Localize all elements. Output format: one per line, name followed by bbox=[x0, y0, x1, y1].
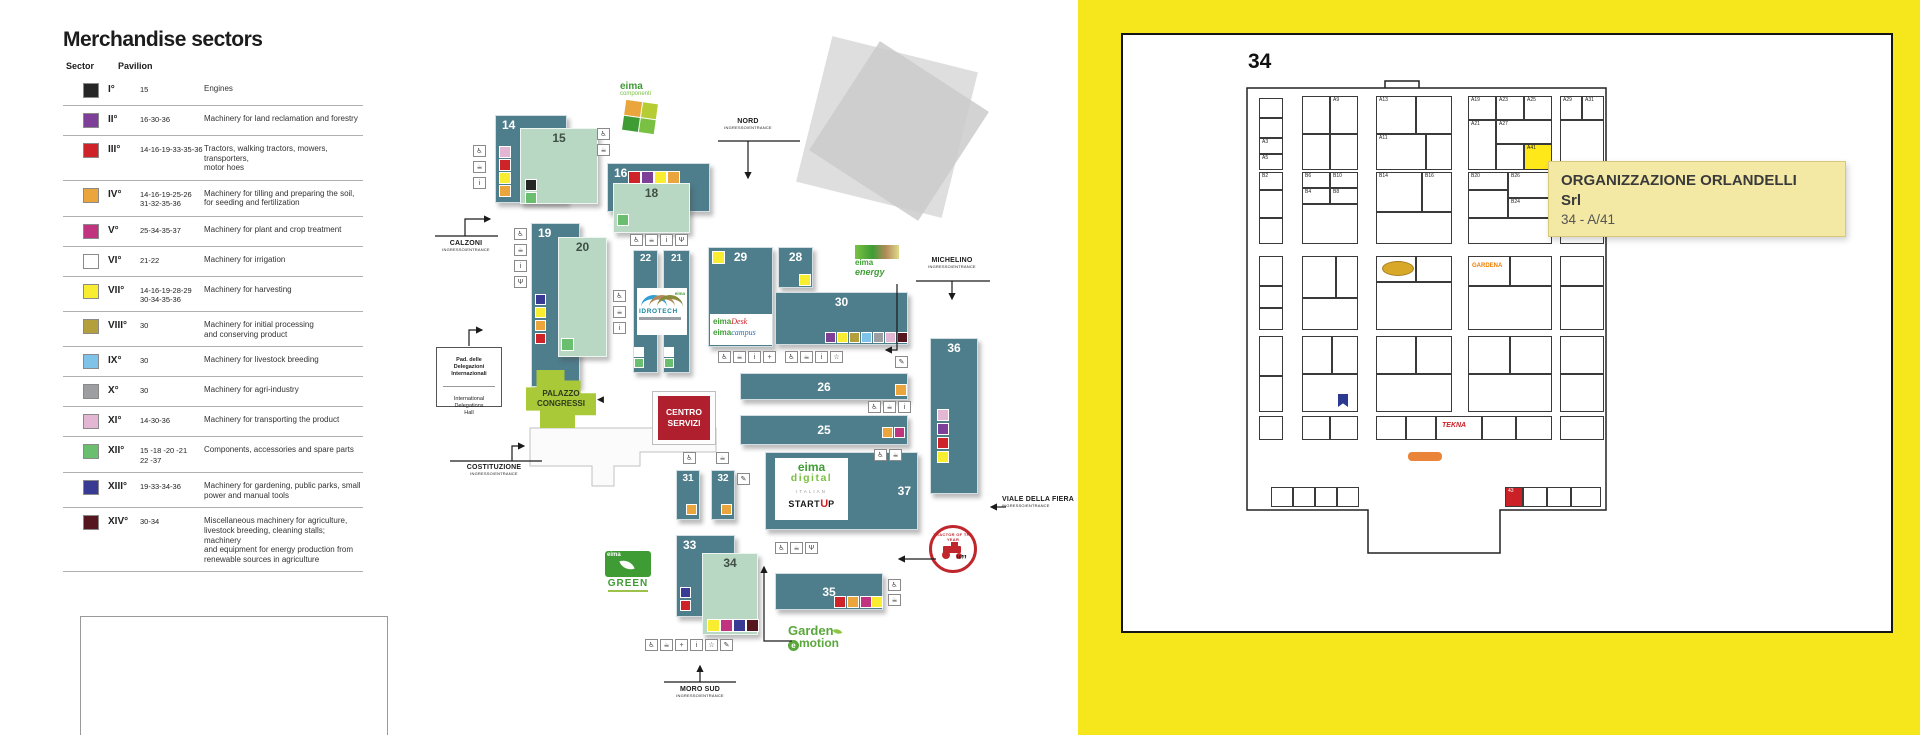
sector-numeral: VI° bbox=[108, 254, 140, 266]
booth-a9[interactable]: A9 bbox=[1330, 96, 1358, 134]
booth-a11[interactable]: A11 bbox=[1376, 134, 1426, 170]
sector-square bbox=[938, 424, 948, 434]
facility-icon-glyph: Ψ bbox=[809, 545, 815, 552]
sector-square bbox=[500, 160, 510, 170]
sector-square bbox=[665, 359, 673, 367]
booth-number: B26 bbox=[1511, 173, 1520, 179]
bar-icon: ☕ bbox=[473, 161, 486, 173]
facility-icon-glyph: Ψ bbox=[518, 279, 524, 286]
leaf-icon bbox=[619, 557, 634, 572]
booth[interactable] bbox=[1547, 487, 1571, 507]
facility-icon-glyph: i bbox=[666, 237, 668, 244]
sector-square bbox=[848, 597, 858, 607]
booth-number: A27 bbox=[1499, 121, 1508, 127]
booth[interactable] bbox=[1302, 96, 1330, 134]
sector-square bbox=[642, 172, 653, 183]
green-logo-box: eima bbox=[605, 551, 651, 577]
sector-description: Machinery for gardening, public parks, s… bbox=[204, 480, 363, 500]
booth-b8[interactable]: B8 bbox=[1330, 188, 1358, 204]
booth[interactable] bbox=[1332, 336, 1358, 374]
booth-number: A25 bbox=[1527, 97, 1536, 103]
booth[interactable] bbox=[1259, 218, 1283, 244]
palazzo-arrow-icon: ◀ bbox=[597, 394, 604, 405]
booth[interactable] bbox=[1376, 212, 1452, 244]
booth-number: B2 bbox=[1262, 173, 1268, 179]
pavilion-number: 25 bbox=[811, 421, 836, 439]
bar-icon: ☕ bbox=[514, 244, 527, 256]
sector-description: Machinery for plant and crop treatment bbox=[204, 224, 363, 235]
idrotech-logo: eima IDROTECH bbox=[637, 288, 687, 335]
sector-pavilions: 15 -18 -20 -21 22 -37 bbox=[140, 444, 204, 465]
sector-square bbox=[500, 147, 510, 157]
energy-leaf-image bbox=[855, 245, 899, 259]
sector-square bbox=[747, 620, 758, 631]
booth-b10[interactable]: B10 bbox=[1330, 172, 1358, 188]
booth[interactable] bbox=[1337, 487, 1359, 507]
sector-square bbox=[826, 333, 835, 342]
booth[interactable] bbox=[1468, 218, 1552, 244]
booth[interactable] bbox=[1376, 374, 1452, 412]
componenti-text: componenti bbox=[620, 91, 670, 97]
booth[interactable] bbox=[1416, 336, 1452, 374]
booth[interactable] bbox=[1302, 374, 1358, 412]
entrance-sign: MORO SUD INGRESSO/ENTRANCE bbox=[664, 686, 736, 698]
booth[interactable] bbox=[1302, 298, 1358, 330]
secretariat-icon: ✎ bbox=[720, 639, 733, 651]
booth-b14[interactable]: B14 bbox=[1376, 172, 1422, 212]
legend-row: XIII° 19-33-34-36 Machinery for gardenin… bbox=[63, 472, 363, 507]
sector-square bbox=[838, 333, 847, 342]
booth[interactable] bbox=[1302, 416, 1330, 440]
sector-square bbox=[721, 620, 732, 631]
eima-digital-startup-logo: eima digital ITALIAN STARTUP bbox=[775, 458, 848, 520]
start-text: START bbox=[788, 499, 820, 509]
sector-square bbox=[835, 597, 845, 607]
sector-square bbox=[861, 597, 871, 607]
booth[interactable] bbox=[1560, 286, 1604, 330]
sector-color-swatch bbox=[83, 113, 99, 128]
facility-icon-glyph: ♿ bbox=[778, 545, 784, 552]
sector-numeral: IX° bbox=[108, 354, 140, 366]
entrance-sign-caption: INGRESSO/ENTRANCE bbox=[446, 471, 542, 476]
idrotech-text: IDROTECH bbox=[639, 308, 685, 315]
facility-icon-glyph: ☕ bbox=[648, 237, 654, 244]
booth[interactable] bbox=[1510, 336, 1552, 374]
booth[interactable] bbox=[1302, 204, 1358, 244]
booth-number: A19 bbox=[1471, 97, 1480, 103]
facility-icon-glyph: ☆ bbox=[708, 642, 714, 649]
legend-row: VIII° 30 Machinery for initial processin… bbox=[63, 311, 363, 346]
booth[interactable] bbox=[1302, 134, 1330, 170]
pavilion-26[interactable]: 26 bbox=[740, 373, 908, 400]
eima-green-logo: eima GREEN bbox=[604, 551, 652, 592]
sector-square bbox=[874, 333, 883, 342]
facility-icon-glyph: ☕ bbox=[891, 597, 897, 604]
sector-square bbox=[938, 410, 948, 420]
bar-icon: ☕ bbox=[790, 542, 803, 554]
sector-color-swatch bbox=[83, 143, 99, 158]
up-u-text: U bbox=[820, 498, 828, 510]
exhibitor-gold-logo bbox=[1382, 261, 1414, 276]
booth[interactable] bbox=[1560, 374, 1604, 412]
energy-text: energy bbox=[855, 268, 899, 277]
facility-icon-glyph: ☕ bbox=[793, 545, 799, 552]
sector-pavilions: 21-22 bbox=[140, 254, 204, 265]
booth-b2[interactable]: B2 bbox=[1259, 172, 1283, 190]
facility-icon-glyph: ♿ bbox=[616, 293, 622, 300]
e-circle-icon: e bbox=[788, 640, 799, 651]
booth-number: A11 bbox=[1379, 135, 1388, 141]
first-aid-icon: + bbox=[763, 351, 776, 363]
entrance-sign-title: VIALE DELLA FIERA bbox=[1002, 496, 1080, 503]
facility-icon-glyph: ☕ bbox=[600, 147, 606, 154]
legend-row: IV° 14-16-19-25-26 31-32-35-36 Machinery… bbox=[63, 180, 363, 216]
sector-square bbox=[635, 348, 643, 356]
bar-icon: ☕ bbox=[883, 401, 896, 413]
facility-icon-glyph: i bbox=[754, 354, 756, 361]
eima-brand-text: eima bbox=[675, 291, 685, 296]
entrance-sign: MICHELINO INGRESSO/ENTRANCE bbox=[914, 257, 990, 269]
booth[interactable] bbox=[1468, 336, 1510, 374]
facility-icon-glyph: ♿ bbox=[476, 148, 482, 155]
garden-emotion-logo: Garden emotion bbox=[788, 624, 874, 651]
palazzo-congressi[interactable]: PALAZZO CONGRESSI bbox=[526, 370, 596, 428]
legend-row: I° 15 Engines bbox=[63, 76, 363, 105]
facility-icon-glyph: ♿ bbox=[517, 231, 523, 238]
booth-a25[interactable]: A25 bbox=[1524, 96, 1552, 120]
sector-square bbox=[635, 359, 643, 367]
wc-icon: ♿ bbox=[683, 452, 696, 464]
entrance-sign: NORD INGRESSO/ENTRANCE bbox=[717, 118, 779, 130]
sector-description: Miscellaneous machinery for agriculture,… bbox=[204, 515, 363, 564]
exhibitor-name-suffix: Srl bbox=[1561, 191, 1833, 211]
facility-icon-glyph: i bbox=[619, 325, 621, 332]
sector-description: Machinery for initial processing and con… bbox=[204, 319, 363, 339]
legend-row: IX° 30 Machinery for livestock breeding bbox=[63, 346, 363, 376]
sector-square bbox=[708, 620, 719, 631]
sector-numeral: IV° bbox=[108, 188, 140, 200]
facility-icon-glyph: i bbox=[479, 180, 481, 187]
sector-pavilions: 14-30-36 bbox=[140, 414, 204, 425]
bar-icon: ☕ bbox=[597, 144, 610, 156]
sector-description: Machinery for irrigation bbox=[204, 254, 363, 265]
sector-numeral: XIV° bbox=[108, 515, 140, 527]
booth[interactable] bbox=[1330, 134, 1358, 170]
wc-icon: ♿ bbox=[888, 579, 901, 591]
legend-row: XIV° 30-34 Miscellaneous machinery for a… bbox=[63, 507, 363, 571]
tractor-icon bbox=[941, 544, 965, 558]
sector-numeral: VII° bbox=[108, 284, 140, 296]
entrance-sign: CALZONI INGRESSO/ENTRANCE bbox=[432, 240, 500, 252]
info-icon: i bbox=[660, 234, 673, 246]
sector-square bbox=[665, 348, 673, 356]
sector-description: Components, accessories and spare parts bbox=[204, 444, 363, 455]
sector-description: Machinery for tilling and preparing the … bbox=[204, 188, 363, 208]
sector-color-swatch bbox=[83, 480, 99, 495]
sector-color-swatch bbox=[83, 284, 99, 299]
sector-square bbox=[536, 321, 545, 330]
sector-pavilions: 30 bbox=[140, 354, 204, 365]
sector-pavilions: 16-30-36 bbox=[140, 113, 204, 124]
tractor-of-the-year-logo: TRACTOR OF THE YEAR bbox=[929, 525, 977, 573]
sector-numeral: XI° bbox=[108, 414, 140, 426]
booth[interactable] bbox=[1315, 487, 1337, 507]
entrance-sign-caption: INGRESSO/ENTRANCE bbox=[914, 264, 990, 269]
sector-color-swatch bbox=[83, 319, 99, 334]
wc-icon: ♿ bbox=[473, 145, 486, 157]
booth-b16[interactable]: B16 bbox=[1422, 172, 1452, 212]
eima-brand-text: eima bbox=[713, 328, 731, 337]
booth-number: A31 bbox=[1585, 97, 1594, 103]
sector-square bbox=[687, 505, 696, 514]
sector-numeral: XII° bbox=[108, 444, 140, 456]
facility-icon-glyph: + bbox=[767, 354, 771, 361]
facility-icon-glyph: ☕ bbox=[736, 354, 742, 361]
booth[interactable] bbox=[1259, 376, 1283, 412]
centro-servizi[interactable]: CENTRO SERVIZI bbox=[658, 396, 710, 440]
sector-numeral: VIII° bbox=[108, 319, 140, 331]
booth-a21[interactable]: A21 bbox=[1468, 120, 1496, 170]
booth-number: A9 bbox=[1333, 97, 1339, 103]
booth-a5[interactable]: A5 bbox=[1259, 154, 1283, 170]
booth[interactable] bbox=[1416, 256, 1452, 282]
booth[interactable] bbox=[1330, 416, 1358, 440]
booth[interactable] bbox=[1516, 416, 1552, 440]
sector-square bbox=[655, 172, 666, 183]
sector-square bbox=[722, 505, 731, 514]
wc-icon: ♿ bbox=[868, 401, 881, 413]
entrance-sign-caption: INGRESSO/ENTRANCE bbox=[664, 693, 736, 698]
pavilion-number: 18 bbox=[639, 184, 664, 232]
booth[interactable] bbox=[1259, 98, 1283, 118]
sector-square bbox=[898, 333, 907, 342]
booth[interactable] bbox=[1560, 256, 1604, 286]
restaurant-icon: Ψ bbox=[805, 542, 818, 554]
booth[interactable] bbox=[1302, 336, 1332, 374]
info-icon: i bbox=[690, 639, 703, 651]
entrance-sign: COSTITUZIONE INGRESSO/ENTRANCE bbox=[446, 464, 542, 476]
legend-rows: I° 15 Engines II° 16-30-36 Machinery for… bbox=[63, 76, 363, 572]
tekna-logo-text: TEKNA bbox=[1442, 422, 1466, 429]
sector-description: Machinery for transporting the product bbox=[204, 414, 363, 425]
booth[interactable] bbox=[1376, 282, 1452, 330]
facility-icon-glyph: ☕ bbox=[476, 164, 482, 171]
sector-pavilions: 14-16-19-33-35-36 bbox=[140, 143, 204, 154]
facility-icon-glyph: ☕ bbox=[616, 309, 622, 316]
sector-description: Machinery for harvesting bbox=[204, 284, 363, 295]
booth[interactable] bbox=[1510, 256, 1552, 286]
sector-description: Machinery for agri-industry bbox=[204, 384, 363, 395]
legend-empty-box bbox=[80, 616, 388, 735]
facility-icon-glyph: ☕ bbox=[803, 354, 809, 361]
booth[interactable] bbox=[1376, 336, 1416, 374]
wc-icon: ♿ bbox=[613, 290, 626, 302]
booth[interactable] bbox=[1416, 96, 1452, 134]
sector-square bbox=[562, 339, 573, 350]
up-p-text: P bbox=[828, 499, 835, 509]
booth[interactable] bbox=[1496, 144, 1524, 170]
legend-row: III° 14-16-19-33-35-36 Tractors, walking… bbox=[63, 135, 363, 180]
booth-number: A21 bbox=[1471, 121, 1480, 127]
motion-text: motion bbox=[799, 636, 839, 650]
booth-a3[interactable]: A3 bbox=[1259, 138, 1283, 154]
pavilion-18[interactable]: 18 bbox=[613, 183, 690, 233]
pavilion-number: 20 bbox=[570, 238, 595, 356]
booth-b20[interactable]: B20 bbox=[1468, 172, 1508, 190]
delegations-label-it: Pad. delle Delegazioni Internazionali bbox=[439, 357, 499, 378]
booth-b4[interactable]: B4 bbox=[1302, 188, 1330, 204]
campus-text: campus bbox=[731, 328, 755, 337]
facility-icon-glyph: ♿ bbox=[788, 354, 794, 361]
facility-icon-glyph: ☆ bbox=[833, 354, 839, 361]
sector-square bbox=[681, 601, 690, 610]
sector-color-swatch bbox=[83, 188, 99, 203]
booth-number: A3 bbox=[1262, 139, 1268, 145]
eima-brand-text: eima bbox=[713, 317, 731, 326]
facility-icon-glyph: ♿ bbox=[721, 354, 727, 361]
sector-color-swatch bbox=[83, 515, 99, 530]
booth[interactable] bbox=[1523, 487, 1547, 507]
merchandise-sectors-legend: Merchandise sectors Sector Pavilion I° 1… bbox=[63, 28, 363, 572]
facility-icon-glyph: ♿ bbox=[600, 131, 606, 138]
booth[interactable] bbox=[1468, 190, 1508, 218]
green-text: GREEN bbox=[604, 578, 652, 589]
idrotech-waves-icon: eima bbox=[641, 291, 685, 307]
info-icon: i bbox=[815, 351, 828, 363]
booth-number: A5 bbox=[1262, 155, 1268, 161]
booth[interactable] bbox=[1271, 487, 1293, 507]
booth-number: A41 bbox=[1527, 145, 1536, 151]
entrance-sign-caption: INGRESSO/ENTRANCE bbox=[432, 247, 500, 252]
info-icon: i bbox=[613, 322, 626, 334]
secretariat-icon: ✎ bbox=[737, 473, 750, 485]
booth[interactable] bbox=[1259, 118, 1283, 138]
booth-a31[interactable]: A31 bbox=[1582, 96, 1604, 120]
facility-icon-glyph: ☕ bbox=[886, 404, 892, 411]
booth[interactable] bbox=[1468, 374, 1552, 412]
eima-fair-map-app: Merchandise sectors Sector Pavilion I° 1… bbox=[0, 0, 1920, 735]
exhibitor-orange-logo bbox=[1408, 452, 1442, 461]
sector-square bbox=[938, 438, 948, 448]
facility-icon-glyph: ✎ bbox=[741, 476, 747, 483]
booth-a27[interactable]: A27 bbox=[1496, 120, 1552, 144]
sector-square bbox=[734, 620, 745, 631]
sector-square bbox=[862, 333, 871, 342]
booth[interactable] bbox=[1560, 336, 1604, 374]
booth[interactable] bbox=[1293, 487, 1315, 507]
pavilion-number: 37 bbox=[892, 482, 917, 500]
sector-color-swatch bbox=[83, 254, 99, 269]
sector-pavilions: 14-16-19-25-26 31-32-35-36 bbox=[140, 188, 204, 209]
exhibitor-tooltip: ORGANIZZAZIONE ORLANDELLI Srl 34 - A/41 bbox=[1548, 161, 1846, 237]
puzzle-icon bbox=[622, 100, 658, 134]
booth-a23[interactable]: A23 bbox=[1496, 96, 1524, 120]
booth[interactable] bbox=[1259, 190, 1283, 218]
legend-col-sector: Sector bbox=[66, 61, 118, 71]
sector-pavilions: 25-34-35-37 bbox=[140, 224, 204, 235]
facility-icon-glyph: i bbox=[821, 354, 823, 361]
booth[interactable] bbox=[1406, 416, 1436, 440]
booth[interactable] bbox=[1259, 286, 1283, 308]
booth[interactable] bbox=[1259, 256, 1283, 286]
sector-square bbox=[668, 172, 679, 183]
booth[interactable] bbox=[1560, 416, 1604, 440]
booth[interactable] bbox=[1376, 416, 1406, 440]
booth[interactable] bbox=[1482, 416, 1516, 440]
booth-a29[interactable]: A29 bbox=[1560, 96, 1582, 120]
facility-icon-glyph: + bbox=[679, 642, 683, 649]
legend-row: XI° 14-30-36 Machinery for transporting … bbox=[63, 406, 363, 436]
wc-icon: ♿ bbox=[874, 449, 887, 461]
entrance-sign: VIALE DELLA FIERA INGRESSO/ENTRANCE bbox=[1002, 496, 1080, 508]
sector-square bbox=[629, 172, 640, 183]
booth-a13[interactable]: A13 bbox=[1376, 96, 1416, 134]
wc-icon: ♿ bbox=[597, 128, 610, 140]
booth[interactable] bbox=[1259, 336, 1283, 376]
legend-col-pavilion: Pavilion bbox=[118, 61, 153, 71]
info-icon: i bbox=[748, 351, 761, 363]
booth[interactable] bbox=[1259, 308, 1283, 330]
wc-icon: ♿ bbox=[645, 639, 658, 651]
eima-energy-logo: eima energy bbox=[855, 245, 899, 283]
facility-icon-glyph: ♿ bbox=[891, 582, 897, 589]
bar-icon: ☕ bbox=[716, 452, 729, 464]
booth-43[interactable]: 43 bbox=[1505, 487, 1523, 507]
booth[interactable] bbox=[1468, 286, 1552, 330]
facility-icon-glyph: ♿ bbox=[686, 455, 692, 462]
booth[interactable] bbox=[1468, 256, 1510, 286]
service-icon: ☆ bbox=[830, 351, 843, 363]
entrance-sign-title: MICHELINO bbox=[914, 257, 990, 264]
legend-row: V° 25-34-35-37 Machinery for plant and c… bbox=[63, 216, 363, 246]
booth[interactable] bbox=[1426, 134, 1452, 170]
sector-square bbox=[886, 333, 895, 342]
eima-desk-campus-logo: eimaDesk eimacampus bbox=[710, 314, 772, 345]
entrance-sign-title: NORD bbox=[717, 118, 779, 125]
booth-number: 43 bbox=[1508, 488, 1514, 494]
facility-icon-glyph: ☕ bbox=[892, 452, 898, 459]
idrotech-caption-bar bbox=[639, 317, 681, 320]
wc-icon: ♿ bbox=[514, 228, 527, 240]
facility-icon-glyph: ✎ bbox=[724, 642, 730, 649]
sector-square bbox=[536, 295, 545, 304]
sector-description: Tractors, walking tractors, mowers, tran… bbox=[204, 143, 363, 173]
booth[interactable] bbox=[1336, 256, 1358, 298]
wc-icon: ♿ bbox=[785, 351, 798, 363]
sector-color-swatch bbox=[83, 224, 99, 239]
facility-icon-glyph: i bbox=[696, 642, 698, 649]
sector-pavilions: 30 bbox=[140, 384, 204, 395]
booth[interactable] bbox=[1259, 416, 1283, 440]
pavilion-number: 15 bbox=[546, 129, 571, 203]
facility-icon-glyph: ✎ bbox=[899, 359, 905, 366]
sector-color-swatch bbox=[83, 354, 99, 369]
booth-b26[interactable]: B26 bbox=[1508, 172, 1552, 198]
sector-description: Machinery for livestock breeding bbox=[204, 354, 363, 365]
booth-a19[interactable]: A19 bbox=[1468, 96, 1496, 120]
entrance-sign-caption: INGRESSO/ENTRANCE bbox=[717, 125, 779, 130]
booth[interactable] bbox=[1302, 256, 1336, 298]
booth-b24[interactable]: B24 bbox=[1508, 198, 1552, 218]
sector-description: Machinery for land reclamation and fores… bbox=[204, 113, 363, 124]
eima-brand-text: eima bbox=[620, 82, 670, 91]
restaurant-icon: Ψ bbox=[514, 276, 527, 288]
pavilion-number: 19 bbox=[532, 224, 557, 386]
booth-b6[interactable]: B6 bbox=[1302, 172, 1330, 188]
booth[interactable] bbox=[1571, 487, 1601, 507]
facility-icon-glyph: ♿ bbox=[877, 452, 883, 459]
service-icon: ☆ bbox=[705, 639, 718, 651]
